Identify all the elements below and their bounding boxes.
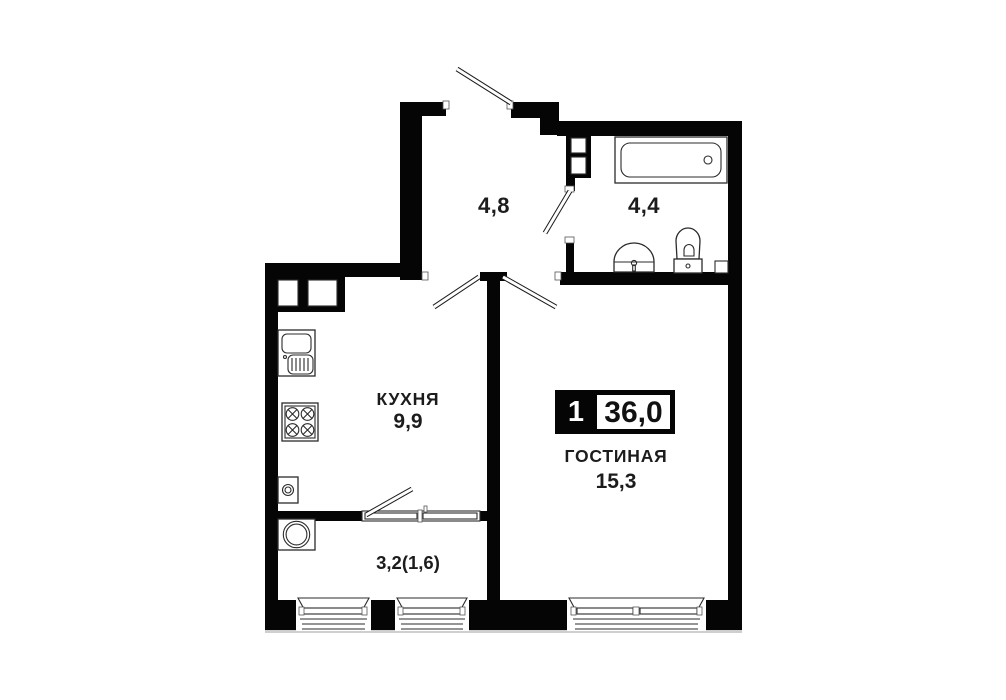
living-room-window [567, 596, 706, 631]
living-room-door-icon [503, 272, 561, 307]
wall-bathroom-bottom [560, 272, 742, 285]
washing-machine-icon [278, 519, 315, 550]
bathroom-area-label: 4,4 [628, 193, 660, 218]
bathtub-icon [615, 137, 727, 183]
bathroom-niche [715, 261, 728, 273]
wall-step-block [540, 102, 559, 135]
kitchen-sink-icon [278, 330, 315, 376]
wall-right [728, 121, 742, 632]
balcony-window-1 [296, 596, 371, 631]
living-room-area-label: 15,3 [596, 470, 637, 493]
badge-total-area: 36,0 [604, 396, 662, 429]
bathroom-door-icon [545, 186, 574, 243]
kitchen-door-icon [422, 272, 479, 307]
bathroom-sink-icon [614, 243, 654, 272]
total-area-badge: 1 36,0 [555, 390, 675, 434]
kitchen-area-label: 9,9 [393, 410, 422, 433]
entry-door-icon [443, 69, 513, 109]
water-heater-icon [278, 477, 298, 503]
floor-plan-page: 1 36,0 4,8 4,4 КУХНЯ 9,9 ГОСТИНАЯ 15,3 3… [0, 0, 1006, 700]
hallway-area-label: 4,8 [478, 193, 510, 218]
wall-bathroom-left-lower [566, 242, 574, 275]
floor-plan: 1 36,0 4,8 4,4 КУХНЯ 9,9 ГОСТИНАЯ 15,3 3… [0, 0, 1006, 700]
balcony-area-label: 3,2(1,6) [376, 552, 440, 573]
wall-hallway-left [400, 102, 422, 280]
kitchen-name-label: КУХНЯ [377, 389, 440, 409]
stove-icon [282, 403, 318, 441]
wall-left [265, 263, 278, 632]
badge-rooms-count: 1 [568, 396, 584, 428]
living-room-name-label: ГОСТИНАЯ [564, 446, 667, 466]
balcony-window-2 [395, 596, 469, 631]
toilet-icon [674, 228, 702, 273]
kitchen-vent-shaft-icon [278, 280, 337, 306]
wall-divider [487, 272, 500, 632]
